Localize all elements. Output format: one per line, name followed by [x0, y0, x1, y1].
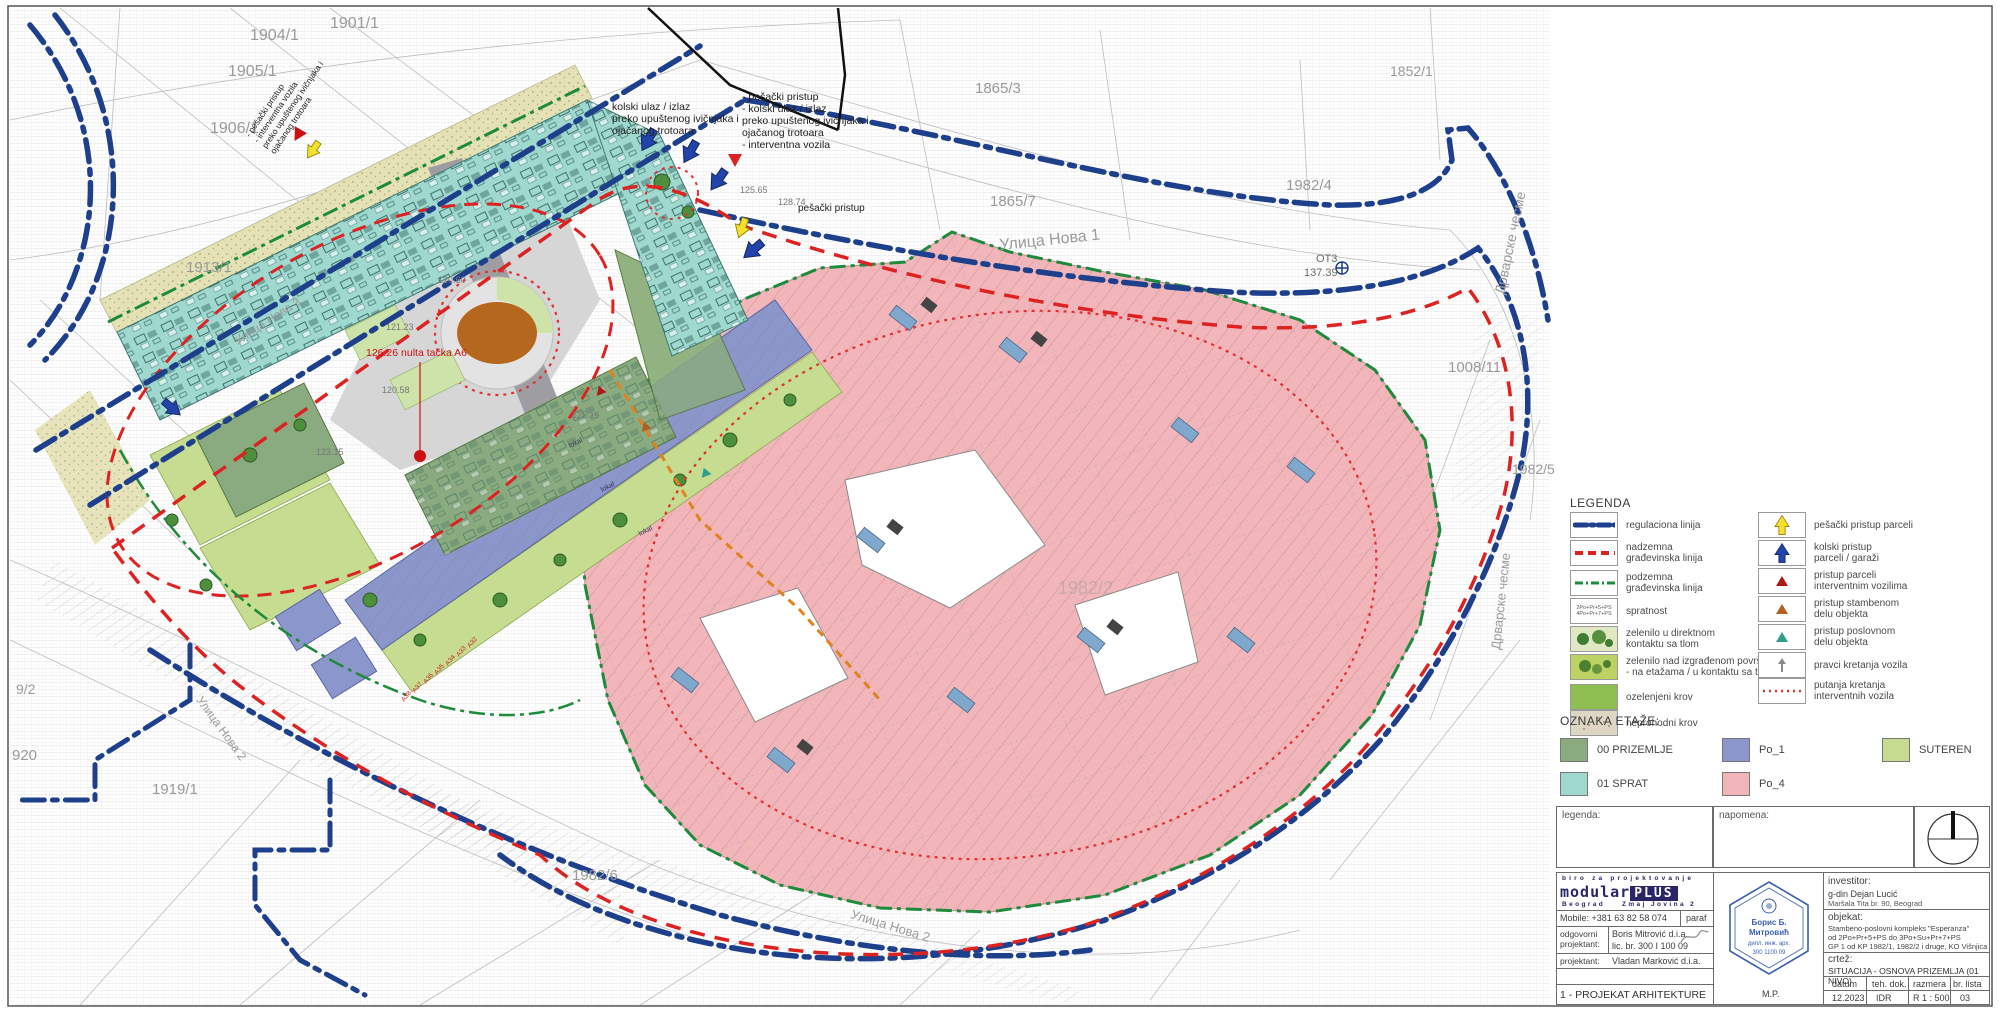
business-access-icon	[1758, 624, 1806, 650]
parcel-label: 1982/5	[1512, 461, 1555, 477]
svg-text:kolski ulaz / izlaz: kolski ulaz / izlaz	[612, 101, 690, 113]
elevation-label: 120.58	[382, 385, 410, 395]
firm-city: Beograd	[1562, 901, 1605, 908]
val-br-lista: 03	[1960, 993, 1970, 1003]
val-datum: 12.2023	[1832, 993, 1865, 1003]
object-line2: od 2Po+Pr+5+PS do 3Po+Su+Pr+7+PS	[1828, 933, 1961, 942]
elevation-label: 125.16	[572, 410, 600, 420]
legend-item-podzemna: podzemnagrađevinska linija	[1570, 570, 1703, 596]
legend-item-regulaciona: regulaciona linija	[1570, 512, 1701, 538]
drawing-label: crtež:	[1828, 954, 1852, 965]
suteren-swatch	[1882, 738, 1910, 762]
parcel-label: 1865/3	[975, 80, 1021, 97]
svg-text:Митровић: Митровић	[1749, 928, 1789, 937]
parcel-label: 9/2	[16, 681, 36, 697]
role-responsible: odgovorniprojektant:	[1560, 929, 1600, 949]
col-br-lista: br. lista	[1953, 979, 1982, 989]
firm-address: Zmaj Jovina 2	[1622, 901, 1696, 908]
legenda-cell: legenda:	[1556, 806, 1713, 868]
greenery-slab-sample-icon	[1570, 654, 1618, 680]
legend-item-spratnost: 2Po+Pr+5+PS4Po+Pr+7+PS spratnost	[1570, 598, 1667, 624]
parcel-label: 1982/6	[572, 867, 618, 884]
svg-text:ojačanog trotoara: ojačanog trotoara	[612, 125, 694, 137]
legend-item-pravci: pravci kretanja vozila	[1758, 652, 1907, 678]
svg-text:- interventna vozila: - interventna vozila	[742, 139, 830, 151]
firm-tagline: biro za projektovanje	[1562, 875, 1694, 882]
parcel-label: 1913/1	[186, 259, 232, 276]
svg-text:- pešački pristup: - pešački pristup	[742, 91, 819, 103]
firm-mobile: Mobile: +381 63 82 58 074	[1560, 913, 1667, 923]
green-roof-sample-icon	[1570, 684, 1618, 710]
svg-text:- kolski ulaz / izlaz: - kolski ulaz / izlaz	[742, 103, 827, 115]
underground-line-sample-icon	[1570, 570, 1618, 596]
parcel-label: 1919/1	[152, 781, 198, 798]
paraf-signature	[1678, 928, 1710, 946]
napomena-cell: napomena:	[1713, 806, 1914, 868]
val-razmera: R 1 : 500	[1913, 993, 1950, 1003]
chamber-stamp: Борис Б. Митровић дипл. инж. арх. 300 11…	[1722, 878, 1816, 978]
object-line1: Stambeno-poslovni kompleks "Esperanza"	[1828, 924, 1969, 933]
svg-text:preko upuštenog ivičnjaka i: preko upuštenog ivičnjaka i	[742, 115, 869, 127]
parcel-label: 1008/11	[1448, 359, 1501, 376]
svg-text:preko upuštenog ivičnjaka i: preko upuštenog ivičnjaka i	[612, 113, 739, 125]
intervention-access-icon	[1758, 568, 1806, 594]
parcel-label: 1904/1	[250, 27, 299, 44]
vehicle-direction-icon	[1758, 652, 1806, 678]
playground-ellipse	[457, 302, 537, 364]
object-line3: GP 1 od KP 1982/1, 1982/2 i druge, KO Vi…	[1828, 942, 1987, 951]
drawing-sheet: 1901/1 1904/1 1905/1 1906/1 1913/1 1852/…	[0, 0, 2000, 1013]
oznaka-item-po1: Po_1	[1722, 738, 1785, 762]
residential-access-icon	[1758, 596, 1806, 622]
investor-address: Maršala Tita br. 90, Beograd	[1828, 899, 1922, 908]
parcel-label: 1982/4	[1286, 177, 1332, 194]
parcel-label: 1901/1	[330, 15, 379, 32]
elevation-label: 120.60	[438, 275, 466, 285]
parcel-label: 1852/1	[1390, 63, 1433, 79]
parcel-label: 1905/1	[228, 63, 277, 80]
benchmark-marker	[1336, 262, 1348, 274]
regulation-line-sample-icon	[1570, 512, 1618, 538]
parcel-label: 920	[12, 747, 37, 764]
elevation-label: 125.65	[740, 185, 768, 195]
col-razmera: razmera	[1913, 979, 1946, 989]
oznaka-item-suteren: SUTEREN	[1882, 738, 1972, 762]
prizemlje-swatch	[1560, 738, 1588, 762]
oznaka-title: OZNAKA ETAŽE:	[1560, 714, 1660, 728]
benchmark-value: 137.39	[1304, 267, 1338, 279]
vehicle-access-icon	[1758, 540, 1806, 566]
elevation-label: 123.15	[316, 447, 344, 457]
sprat-swatch	[1560, 772, 1588, 796]
north-arrow-icon	[1915, 807, 1989, 867]
legend-item-putanja: putanja kretanjainterventnih vozila	[1758, 678, 1894, 704]
po4-swatch	[1722, 772, 1750, 796]
elevation-label: 121.23	[386, 322, 414, 332]
svg-text:дипл. инж. арх.: дипл. инж. арх.	[1748, 941, 1791, 947]
legend-item-pesacki-pristup: pešački pristup parceli	[1758, 512, 1913, 538]
legend-item-stambeni: pristup stambenomdelu objekta	[1758, 596, 1899, 622]
pedestrian-access-icon	[1758, 512, 1806, 538]
oznaka-item-prizemlje: 00 PRIZEMLJE	[1560, 738, 1673, 762]
stamp-mp-label: M.P.	[1762, 989, 1779, 999]
val-teh-dok: IDR	[1876, 993, 1892, 1003]
investor-name: g-din Dejan Lucić	[1828, 889, 1898, 899]
spratnost-sample-box: 2Po+Pr+5+PS4Po+Pr+7+PS	[1570, 598, 1618, 624]
po1-swatch	[1722, 738, 1750, 762]
parcel-label: 1865/7	[990, 193, 1036, 210]
svg-text:Борис Б.: Борис Б.	[1751, 918, 1786, 927]
parcel-label-ghost: 1982/2	[1058, 578, 1113, 598]
legend-item-zelenilo-etaza: zelenilo nad izgrađenom površinom- na et…	[1570, 654, 1783, 680]
responsible-name: Boris Mitrović d.i.a.	[1612, 929, 1688, 939]
legend-item-ozelenjeni-krov: ozelenjeni krov	[1570, 684, 1693, 710]
designer-name: Vladan Marković d.i.a.	[1612, 956, 1701, 966]
svg-text:ojačanog trotoara: ojačanog trotoara	[742, 127, 824, 139]
legend-title: LEGENDA	[1570, 496, 1631, 510]
object-label: objekat:	[1828, 912, 1863, 923]
benchmark-name: ОТ3	[1316, 253, 1337, 265]
oznaka-item-sprat: 01 SPRAT	[1560, 772, 1648, 796]
nulta-tacka-label: 126.26 nulta tačka A6	[366, 347, 467, 359]
above-ground-line-sample-icon	[1570, 540, 1618, 566]
responsible-licence: lic. br. 300 I 100 09	[1612, 941, 1688, 951]
legend-item-zelenilo-tlo: zelenilo u direktnomkontaktu sa tlom	[1570, 626, 1715, 652]
legend-item-poslovni: pristup poslovnomdelu objekta	[1758, 624, 1895, 650]
legend-item-kolski-pristup: kolski pristupparceli / garaži	[1758, 540, 1879, 566]
intervention-route-icon	[1758, 678, 1806, 704]
role-designer: projektant:	[1560, 956, 1600, 966]
col-teh-dok: teh. dok.	[1872, 979, 1907, 989]
greenery-ground-sample-icon	[1570, 626, 1618, 652]
legend-item-interventna: pristup parceliinterventnim vozilima	[1758, 568, 1907, 594]
col-datum: datum	[1832, 979, 1857, 989]
project-section: 1 - PROJEKAT ARHITEKTURE	[1560, 989, 1706, 1001]
investor-label: investitor:	[1828, 876, 1871, 887]
paraf-label: paraf	[1686, 913, 1707, 923]
pedestrian-access-label: pešački pristup	[798, 203, 865, 214]
oznaka-item-po4: Po_4	[1722, 772, 1785, 796]
firm-logo: modularPLUS	[1560, 883, 1678, 902]
north-arrow-cell	[1914, 806, 1990, 868]
svg-text:300 1100 09: 300 1100 09	[1753, 950, 1787, 956]
legend-item-nadzemna: nadzemnagrađevinska linija	[1570, 540, 1703, 566]
